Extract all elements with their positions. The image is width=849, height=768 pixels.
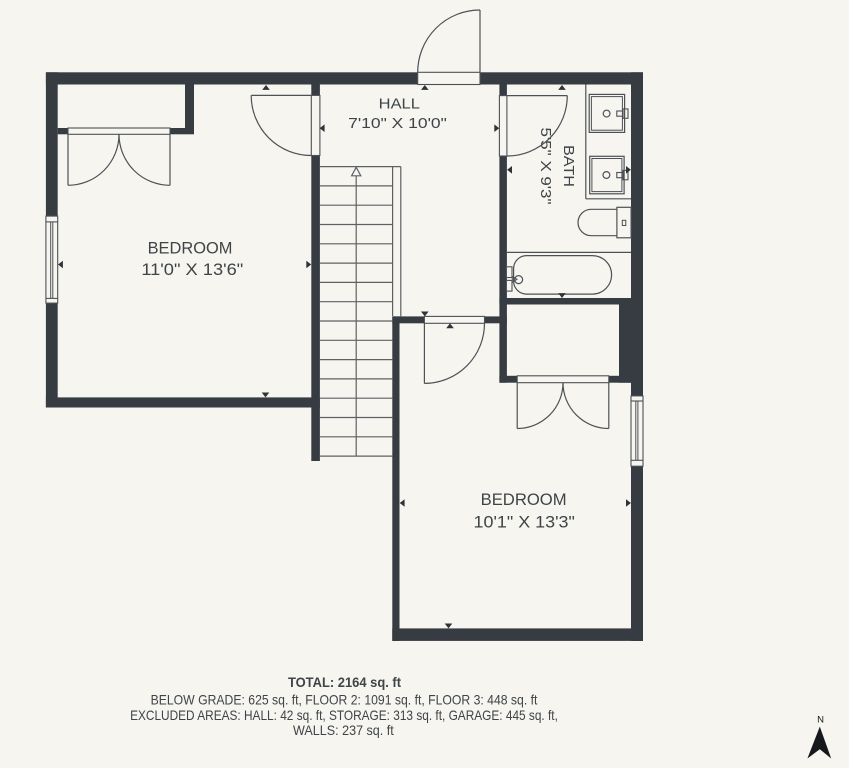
svg-text:EXCLUDED AREAS: HALL: 42 sq. f: EXCLUDED AREAS: HALL: 42 sq. ft, STORAGE… bbox=[130, 707, 558, 723]
svg-text:WALLS: 237 sq. ft: WALLS: 237 sq. ft bbox=[293, 722, 394, 738]
svg-text:BELOW GRADE: 625 sq. ft, FLOOR: BELOW GRADE: 625 sq. ft, FLOOR 2: 1091 s… bbox=[151, 692, 538, 708]
svg-text:BATH: BATH bbox=[560, 145, 577, 187]
svg-text:TOTAL: 2164 sq. ft: TOTAL: 2164 sq. ft bbox=[288, 674, 401, 690]
svg-text:HALL: HALL bbox=[379, 95, 420, 112]
svg-text:N: N bbox=[817, 714, 824, 725]
svg-text:11'0" X 13'6": 11'0" X 13'6" bbox=[141, 260, 243, 279]
svg-text:10'1" X 13'3": 10'1" X 13'3" bbox=[474, 513, 575, 532]
svg-text:7'10" X 10'0": 7'10" X 10'0" bbox=[348, 115, 447, 132]
svg-text:5'5" X 9'3": 5'5" X 9'3" bbox=[537, 128, 554, 205]
svg-text:BEDROOM: BEDROOM bbox=[148, 238, 233, 257]
svg-text:BEDROOM: BEDROOM bbox=[481, 490, 567, 509]
